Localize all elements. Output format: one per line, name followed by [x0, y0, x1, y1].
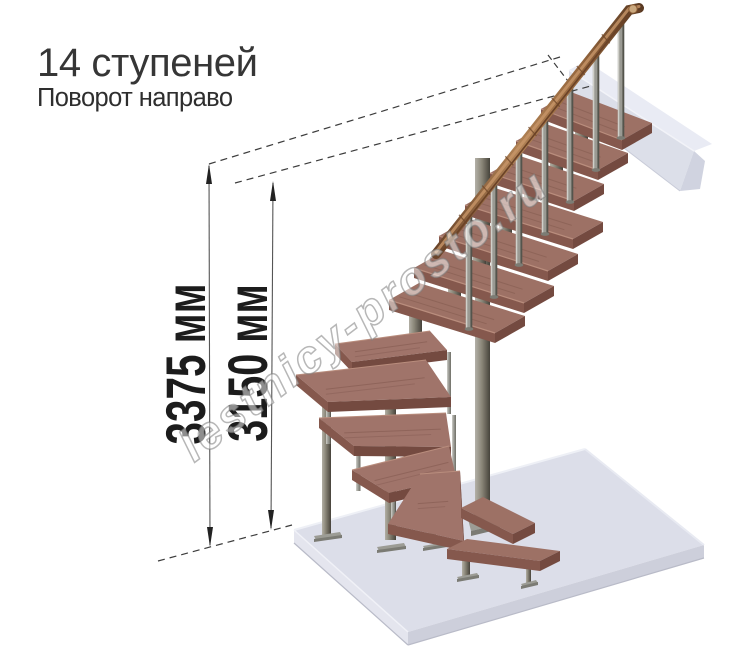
svg-text:Поворот направо: Поворот направо	[37, 84, 233, 112]
svg-text:14 ступеней: 14 ступеней	[37, 41, 258, 85]
